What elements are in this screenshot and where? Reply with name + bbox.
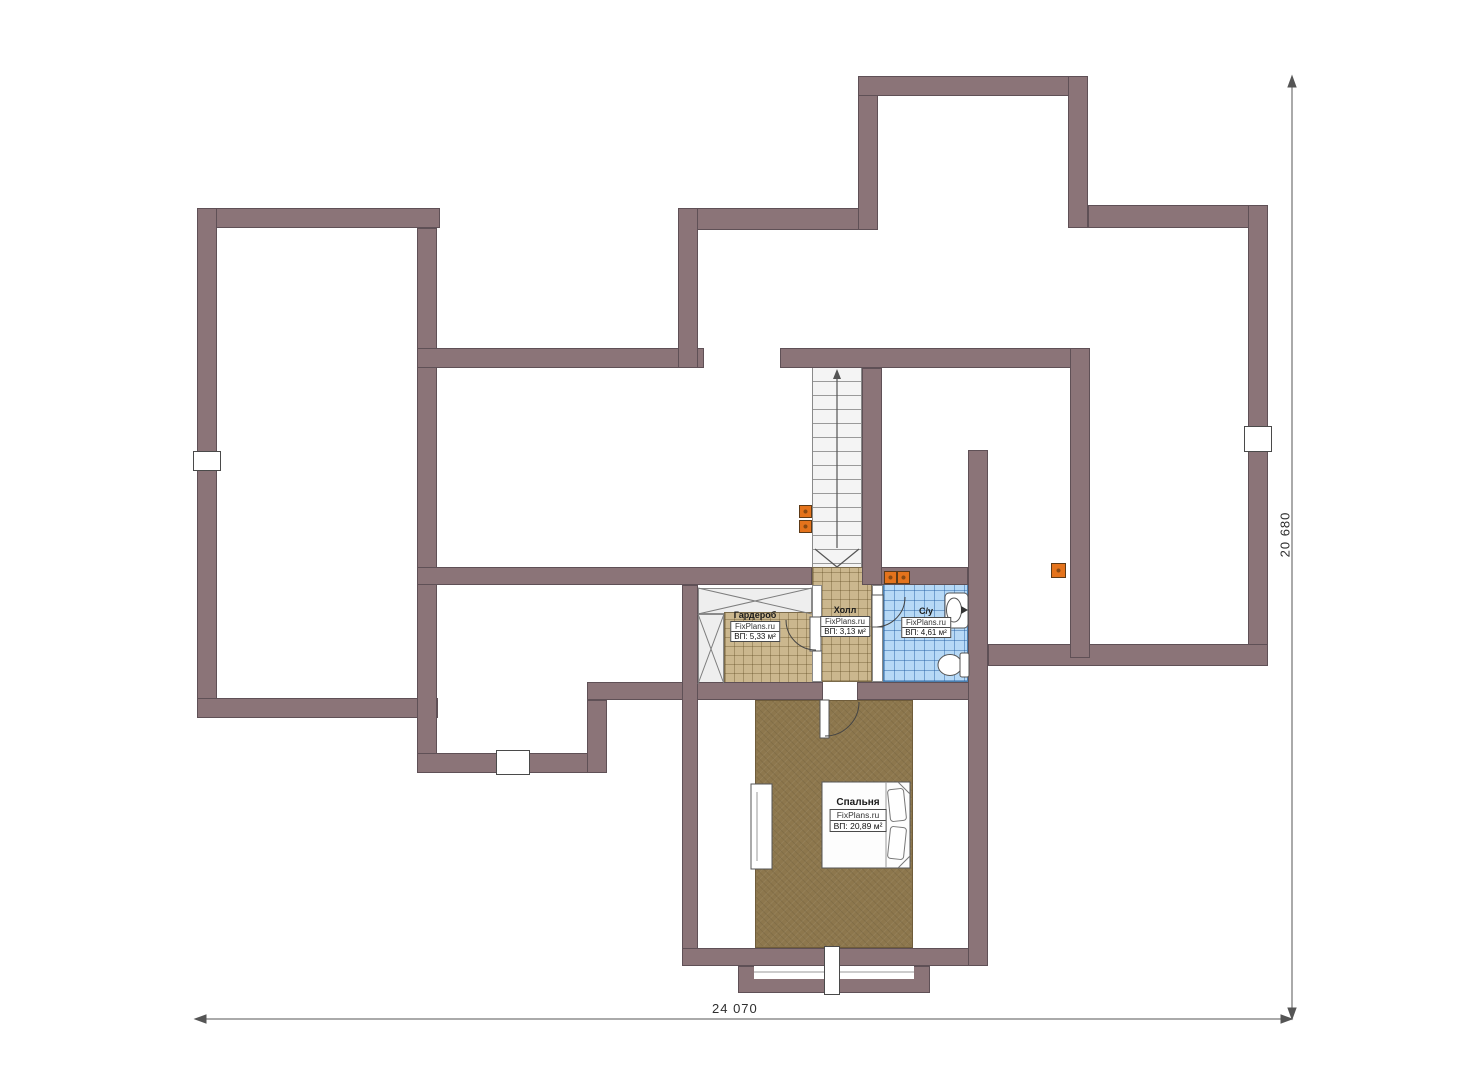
room-name: Гардероб xyxy=(730,610,780,620)
wall-step-vertical xyxy=(587,700,607,773)
wall-wing-partition xyxy=(1070,348,1090,658)
window-right-wall xyxy=(1244,426,1272,452)
socket-stairs-upper xyxy=(799,505,812,518)
room-info-box: FixPlans.ru ВП: 5,33 м² xyxy=(730,621,780,642)
room-label-wardrobe: Гардероб FixPlans.ru ВП: 5,33 м² xyxy=(730,610,780,644)
room-name: Холл xyxy=(820,605,870,615)
room-label-bedroom: Спальня FixPlans.ru ВП: 20,89 м² xyxy=(830,797,887,834)
watermark-text: FixPlans.ru xyxy=(731,622,779,632)
room-name: С/у xyxy=(901,606,951,616)
partition-hall-bath-upper xyxy=(872,585,883,596)
wall-left-block-bottom xyxy=(197,698,438,718)
socket-bathroom-left xyxy=(884,571,897,584)
wall-right-wing-bottom xyxy=(988,644,1268,666)
wall-tower-left xyxy=(858,76,878,230)
balcony-door xyxy=(824,946,840,995)
window-bottom-left-wall xyxy=(496,750,530,775)
watermark-text: FixPlans.ru xyxy=(831,810,886,821)
dimension-height-label: 20 680 xyxy=(1277,512,1292,558)
room-area: ВП: 20,89 м² xyxy=(831,821,886,831)
wall-left-flank-top xyxy=(678,208,878,230)
wall-right-flank-top xyxy=(1088,205,1268,228)
partition-wardrobe-hall-lower xyxy=(812,650,822,682)
room-area: ВП: 4,61 м² xyxy=(902,628,950,637)
wall-tower-right xyxy=(1068,76,1088,228)
wall-left-block-top xyxy=(197,208,440,228)
wall-left-block-right xyxy=(417,228,437,773)
socket-bathroom-right xyxy=(897,571,910,584)
floor-plan-canvas: Гардероб FixPlans.ru ВП: 5,33 м² Холл Fi… xyxy=(0,0,1474,1080)
bedroom-door-opening xyxy=(823,682,857,700)
room-area: ВП: 3,13 м² xyxy=(821,627,869,636)
wall-rooms-top-band-left xyxy=(417,567,812,585)
room-name: Спальня xyxy=(830,797,887,808)
dimension-width-label: 24 070 xyxy=(712,1001,758,1016)
room-info-box: FixPlans.ru ВП: 20,89 м² xyxy=(830,809,887,832)
wall-stairs-right xyxy=(862,368,882,585)
wardrobe-closet-hatch-left xyxy=(698,614,724,684)
watermark-text: FixPlans.ru xyxy=(902,618,950,628)
wall-bath-bedroom-right xyxy=(968,450,988,966)
wall-under-rooms-left xyxy=(587,682,823,700)
room-label-hall: Холл FixPlans.ru ВП: 3,13 м² xyxy=(820,605,870,639)
window-left-wall xyxy=(193,451,221,471)
wall-left-flank-vertical xyxy=(678,208,698,368)
wall-mid-horizontal-left xyxy=(417,348,704,368)
partition-hall-bath-lower xyxy=(872,626,883,682)
wall-mid-horizontal-right xyxy=(780,348,1090,368)
socket-right-wing xyxy=(1051,563,1066,578)
staircase xyxy=(812,368,862,567)
room-info-box: FixPlans.ru ВП: 4,61 м² xyxy=(901,617,951,638)
watermark-text: FixPlans.ru xyxy=(821,617,869,627)
wall-bedroom-left xyxy=(682,585,698,966)
room-area: ВП: 5,33 м² xyxy=(731,632,779,641)
room-label-bathroom: С/у FixPlans.ru ВП: 4,61 м² xyxy=(901,606,951,640)
wall-tower-top xyxy=(858,76,1088,96)
room-info-box: FixPlans.ru ВП: 3,13 м² xyxy=(820,616,870,637)
socket-stairs-lower xyxy=(799,520,812,533)
